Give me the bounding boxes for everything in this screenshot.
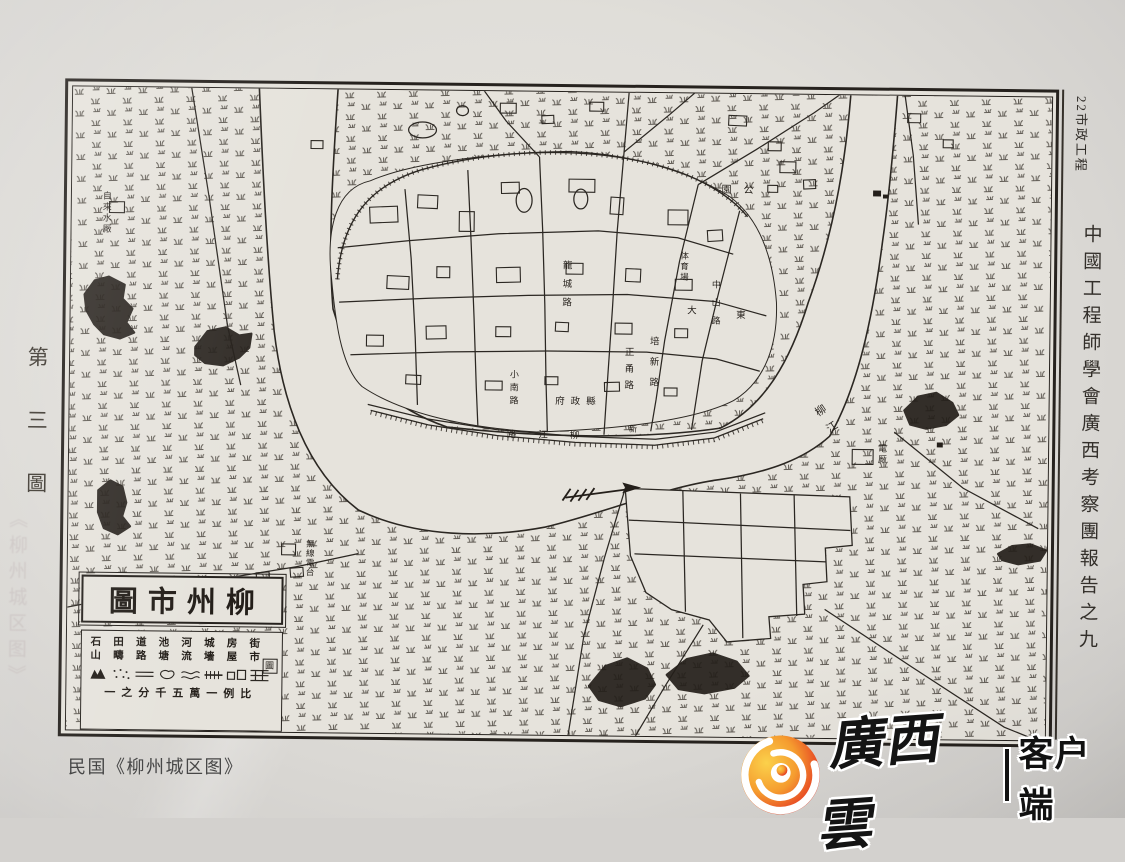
map-inner-frame: 自來水厰園公電厰無線電台府政縣龍城路小南路路江柳培新路正甬路体育場中山路東大柳江… — [64, 85, 1052, 741]
map-title-box: 圖市州柳 — [81, 574, 284, 624]
river-lines-symbol — [179, 666, 201, 682]
map-label: 中山路 — [710, 279, 720, 333]
faint-watermark-text: 《柳州城区图》 — [1, 509, 30, 691]
legend-items: 街市房屋城墻河流池塘道路田疇石山 — [87, 635, 275, 664]
houses-symbol — [226, 667, 248, 683]
map-label: 培新路 — [646, 335, 657, 397]
legend-seal: 圖 — [262, 658, 277, 673]
map-label: 電厰 — [876, 443, 886, 465]
scale-text: 一之分千五萬一例比 — [87, 683, 275, 701]
hill-symbol — [87, 665, 109, 681]
map-cartouche: 圖市州柳 街市房屋城墻河流池塘道路田疇石山 圖 一之 — [79, 574, 283, 731]
logo-divider — [1003, 747, 1012, 803]
swirl-flame-icon — [727, 721, 834, 829]
legend-item: 街市 — [246, 637, 261, 664]
legend-item: 石山 — [87, 635, 102, 662]
map-label: 龍城路 — [559, 259, 570, 315]
figure-number: 第三圖 — [20, 346, 52, 535]
guangxi-cloud-watermark: 廣西雲 客户端 — [738, 732, 1125, 818]
report-spine-text: 中國工程師學會廣西考察團報告之九 — [1073, 224, 1105, 656]
map-legend-box: 街市房屋城墻河流池塘道路田疇石山 圖 一之分千五萬一例比 — [79, 629, 282, 731]
map-outer-frame: 自來水厰園公電厰無線電台府政縣龍城路小南路路江柳培新路正甬路体育場中山路東大柳江… — [58, 78, 1059, 747]
map-label: 体育場 — [679, 251, 688, 283]
map-label: 新 — [629, 424, 638, 433]
legend-item: 道路 — [133, 636, 148, 663]
legend-item: 房屋 — [223, 637, 238, 664]
legend-symbols — [87, 665, 275, 683]
photo-caption: 民国《柳州城区图》 — [68, 753, 244, 779]
field-dots-symbol — [110, 665, 132, 681]
map-label: 無線電台 — [305, 539, 314, 577]
logo-client-text: 客户端 — [1018, 726, 1125, 828]
legend-item: 池塘 — [155, 636, 170, 663]
map-label: 府政縣 — [555, 397, 602, 407]
map-label: 正甬路 — [621, 346, 632, 396]
page-header-text: 22市政工程 — [1072, 96, 1092, 173]
wall-hatch-symbol — [203, 666, 225, 682]
map-label: 路江柳 — [507, 431, 602, 442]
map-label: 東 — [736, 311, 746, 321]
map-label: 園公 — [721, 185, 765, 196]
map-label: 大 — [687, 307, 697, 317]
map-title: 圖市州柳 — [109, 577, 265, 621]
legend-item: 田疇 — [110, 635, 125, 662]
legend-item: 城墻 — [201, 636, 216, 663]
road-lines-symbol — [133, 666, 155, 682]
pond-symbol — [156, 666, 178, 682]
logo-brand-text: 廣西雲 — [816, 688, 1004, 862]
map-label: 自來水厰 — [101, 190, 111, 234]
map-label: 小南路 — [508, 369, 518, 408]
legend-item: 河流 — [178, 636, 193, 663]
map-label: 柳江 — [811, 403, 843, 443]
